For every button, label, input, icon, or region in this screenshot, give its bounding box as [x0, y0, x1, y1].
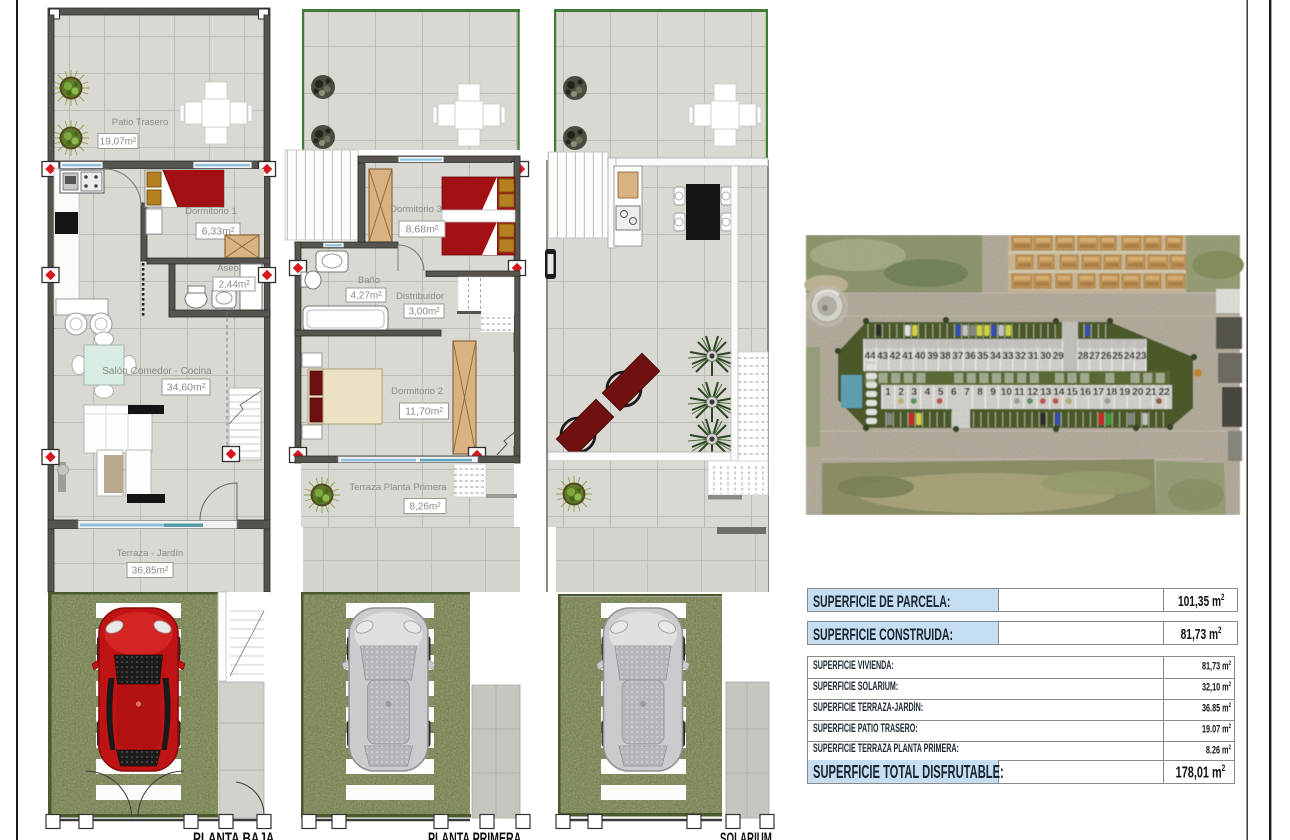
svg-text:34: 34 — [990, 351, 1002, 362]
svg-text:4,27m²: 4,27m² — [350, 291, 382, 302]
svg-text:38: 38 — [940, 351, 952, 362]
svg-text:12: 12 — [1027, 387, 1039, 398]
svg-text:25: 25 — [1112, 351, 1124, 362]
svg-text:6: 6 — [951, 387, 957, 398]
svg-text:10: 10 — [1001, 387, 1013, 398]
svg-text:42: 42 — [890, 351, 902, 362]
svg-text:29: 29 — [1053, 351, 1065, 362]
svg-text:24: 24 — [1124, 351, 1136, 362]
svg-text:21: 21 — [1145, 387, 1157, 398]
svg-text:35: 35 — [977, 351, 989, 362]
svg-text:19: 19 — [1119, 387, 1131, 398]
svg-text:Terraza Planta Primera: Terraza Planta Primera — [349, 482, 447, 493]
svg-text:36,85m²: 36,85m² — [132, 566, 169, 577]
svg-text:9: 9 — [990, 387, 996, 398]
svg-text:15: 15 — [1067, 387, 1079, 398]
svg-text:11: 11 — [1014, 387, 1025, 398]
svg-text:3: 3 — [912, 387, 918, 398]
svg-text:Salón Comedor - Cocina: Salón Comedor - Cocina — [102, 366, 212, 377]
svg-text:14: 14 — [1053, 387, 1065, 398]
svg-text:41: 41 — [902, 351, 914, 362]
svg-text:16: 16 — [1080, 387, 1092, 398]
svg-text:2: 2 — [898, 387, 904, 398]
svg-text:40: 40 — [915, 351, 927, 362]
svg-text:34,60m²: 34,60m² — [167, 382, 206, 394]
svg-text:39: 39 — [927, 351, 939, 362]
svg-text:31: 31 — [1028, 351, 1040, 362]
svg-text:Aseo: Aseo — [217, 263, 239, 274]
svg-text:8,26m²: 8,26m² — [409, 502, 441, 513]
svg-text:Terraza - Jardín: Terraza - Jardín — [117, 548, 184, 559]
svg-text:43: 43 — [877, 351, 889, 362]
svg-text:8,68m²: 8,68m² — [406, 224, 439, 236]
svg-text:30: 30 — [1040, 351, 1052, 362]
svg-text:Dormitorio 3: Dormitorio 3 — [390, 204, 442, 215]
svg-text:5: 5 — [938, 387, 944, 398]
svg-text:17: 17 — [1093, 387, 1105, 398]
svg-text:20: 20 — [1132, 387, 1144, 398]
svg-text:Baño: Baño — [358, 275, 380, 286]
svg-text:33: 33 — [1002, 351, 1014, 362]
svg-text:11,70m²: 11,70m² — [405, 406, 443, 418]
svg-text:37: 37 — [952, 351, 964, 362]
svg-text:27: 27 — [1089, 351, 1101, 362]
svg-text:23: 23 — [1135, 351, 1147, 362]
svg-text:2,44m²: 2,44m² — [218, 280, 250, 291]
svg-text:36: 36 — [965, 351, 977, 362]
svg-text:Dormitorio 1: Dormitorio 1 — [185, 206, 237, 217]
svg-text:Distribuidor: Distribuidor — [396, 291, 444, 302]
svg-text:1: 1 — [885, 387, 891, 398]
svg-text:3,00m²: 3,00m² — [408, 307, 440, 318]
svg-text:Dormitorio 2: Dormitorio 2 — [391, 386, 443, 397]
svg-text:13: 13 — [1040, 387, 1052, 398]
svg-text:4: 4 — [925, 387, 931, 398]
svg-text:8: 8 — [977, 387, 983, 398]
svg-text:18: 18 — [1106, 387, 1118, 398]
svg-text:22: 22 — [1159, 387, 1171, 398]
svg-text:26: 26 — [1101, 351, 1113, 362]
svg-text:19,07m²: 19,07m² — [100, 137, 137, 148]
svg-text:44: 44 — [864, 351, 876, 362]
svg-text:32: 32 — [1015, 351, 1027, 362]
svg-text:Patio Trasero: Patio Trasero — [112, 117, 169, 128]
svg-text:28: 28 — [1077, 351, 1089, 362]
svg-text:7: 7 — [964, 387, 970, 398]
